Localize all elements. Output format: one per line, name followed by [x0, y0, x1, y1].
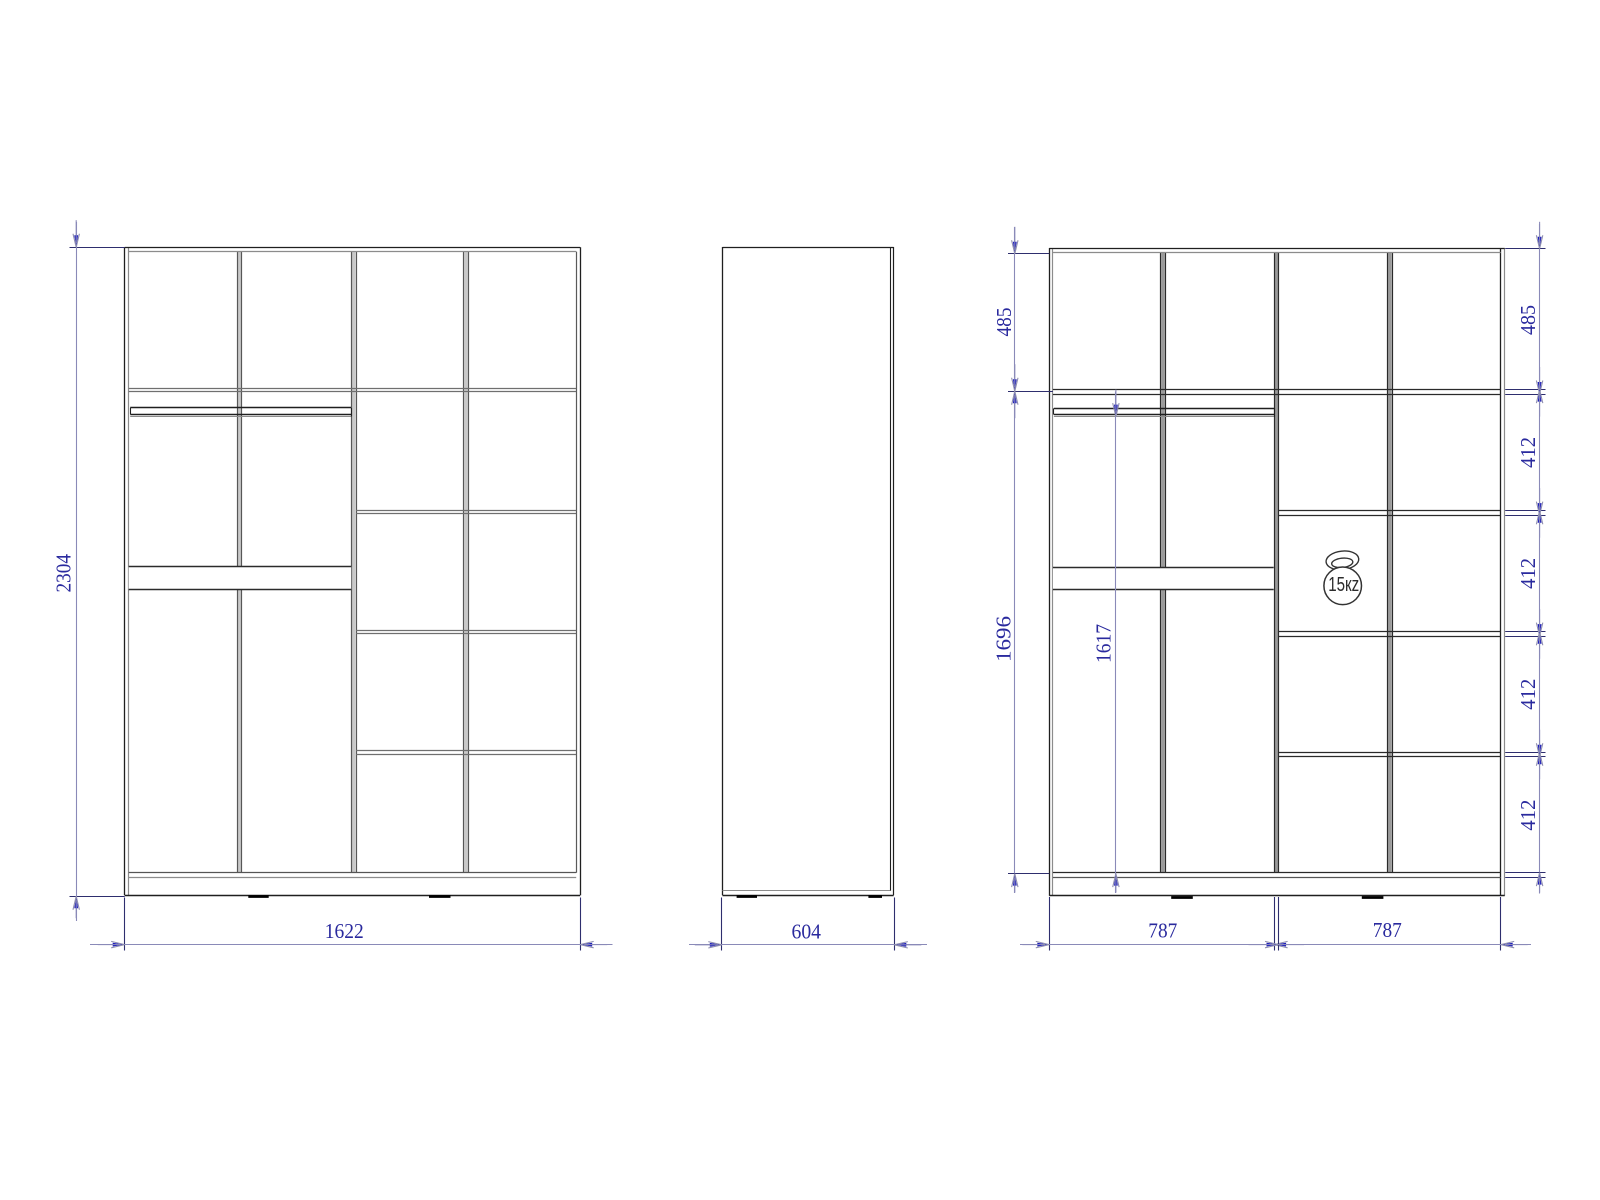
svg-text:15кz: 15кz — [1328, 574, 1359, 596]
svg-text:485: 485 — [992, 308, 1016, 337]
svg-text:485: 485 — [1516, 305, 1540, 335]
svg-text:412: 412 — [1516, 800, 1540, 831]
svg-text:412: 412 — [1516, 437, 1540, 468]
svg-text:787: 787 — [1148, 919, 1177, 943]
svg-text:2304: 2304 — [52, 554, 76, 593]
svg-text:1696: 1696 — [992, 616, 1016, 662]
svg-text:1617: 1617 — [1092, 624, 1116, 663]
svg-text:412: 412 — [1516, 679, 1540, 710]
svg-text:412: 412 — [1516, 558, 1540, 589]
svg-text:604: 604 — [792, 919, 822, 943]
svg-text:787: 787 — [1373, 918, 1402, 942]
svg-text:1622: 1622 — [325, 919, 364, 943]
